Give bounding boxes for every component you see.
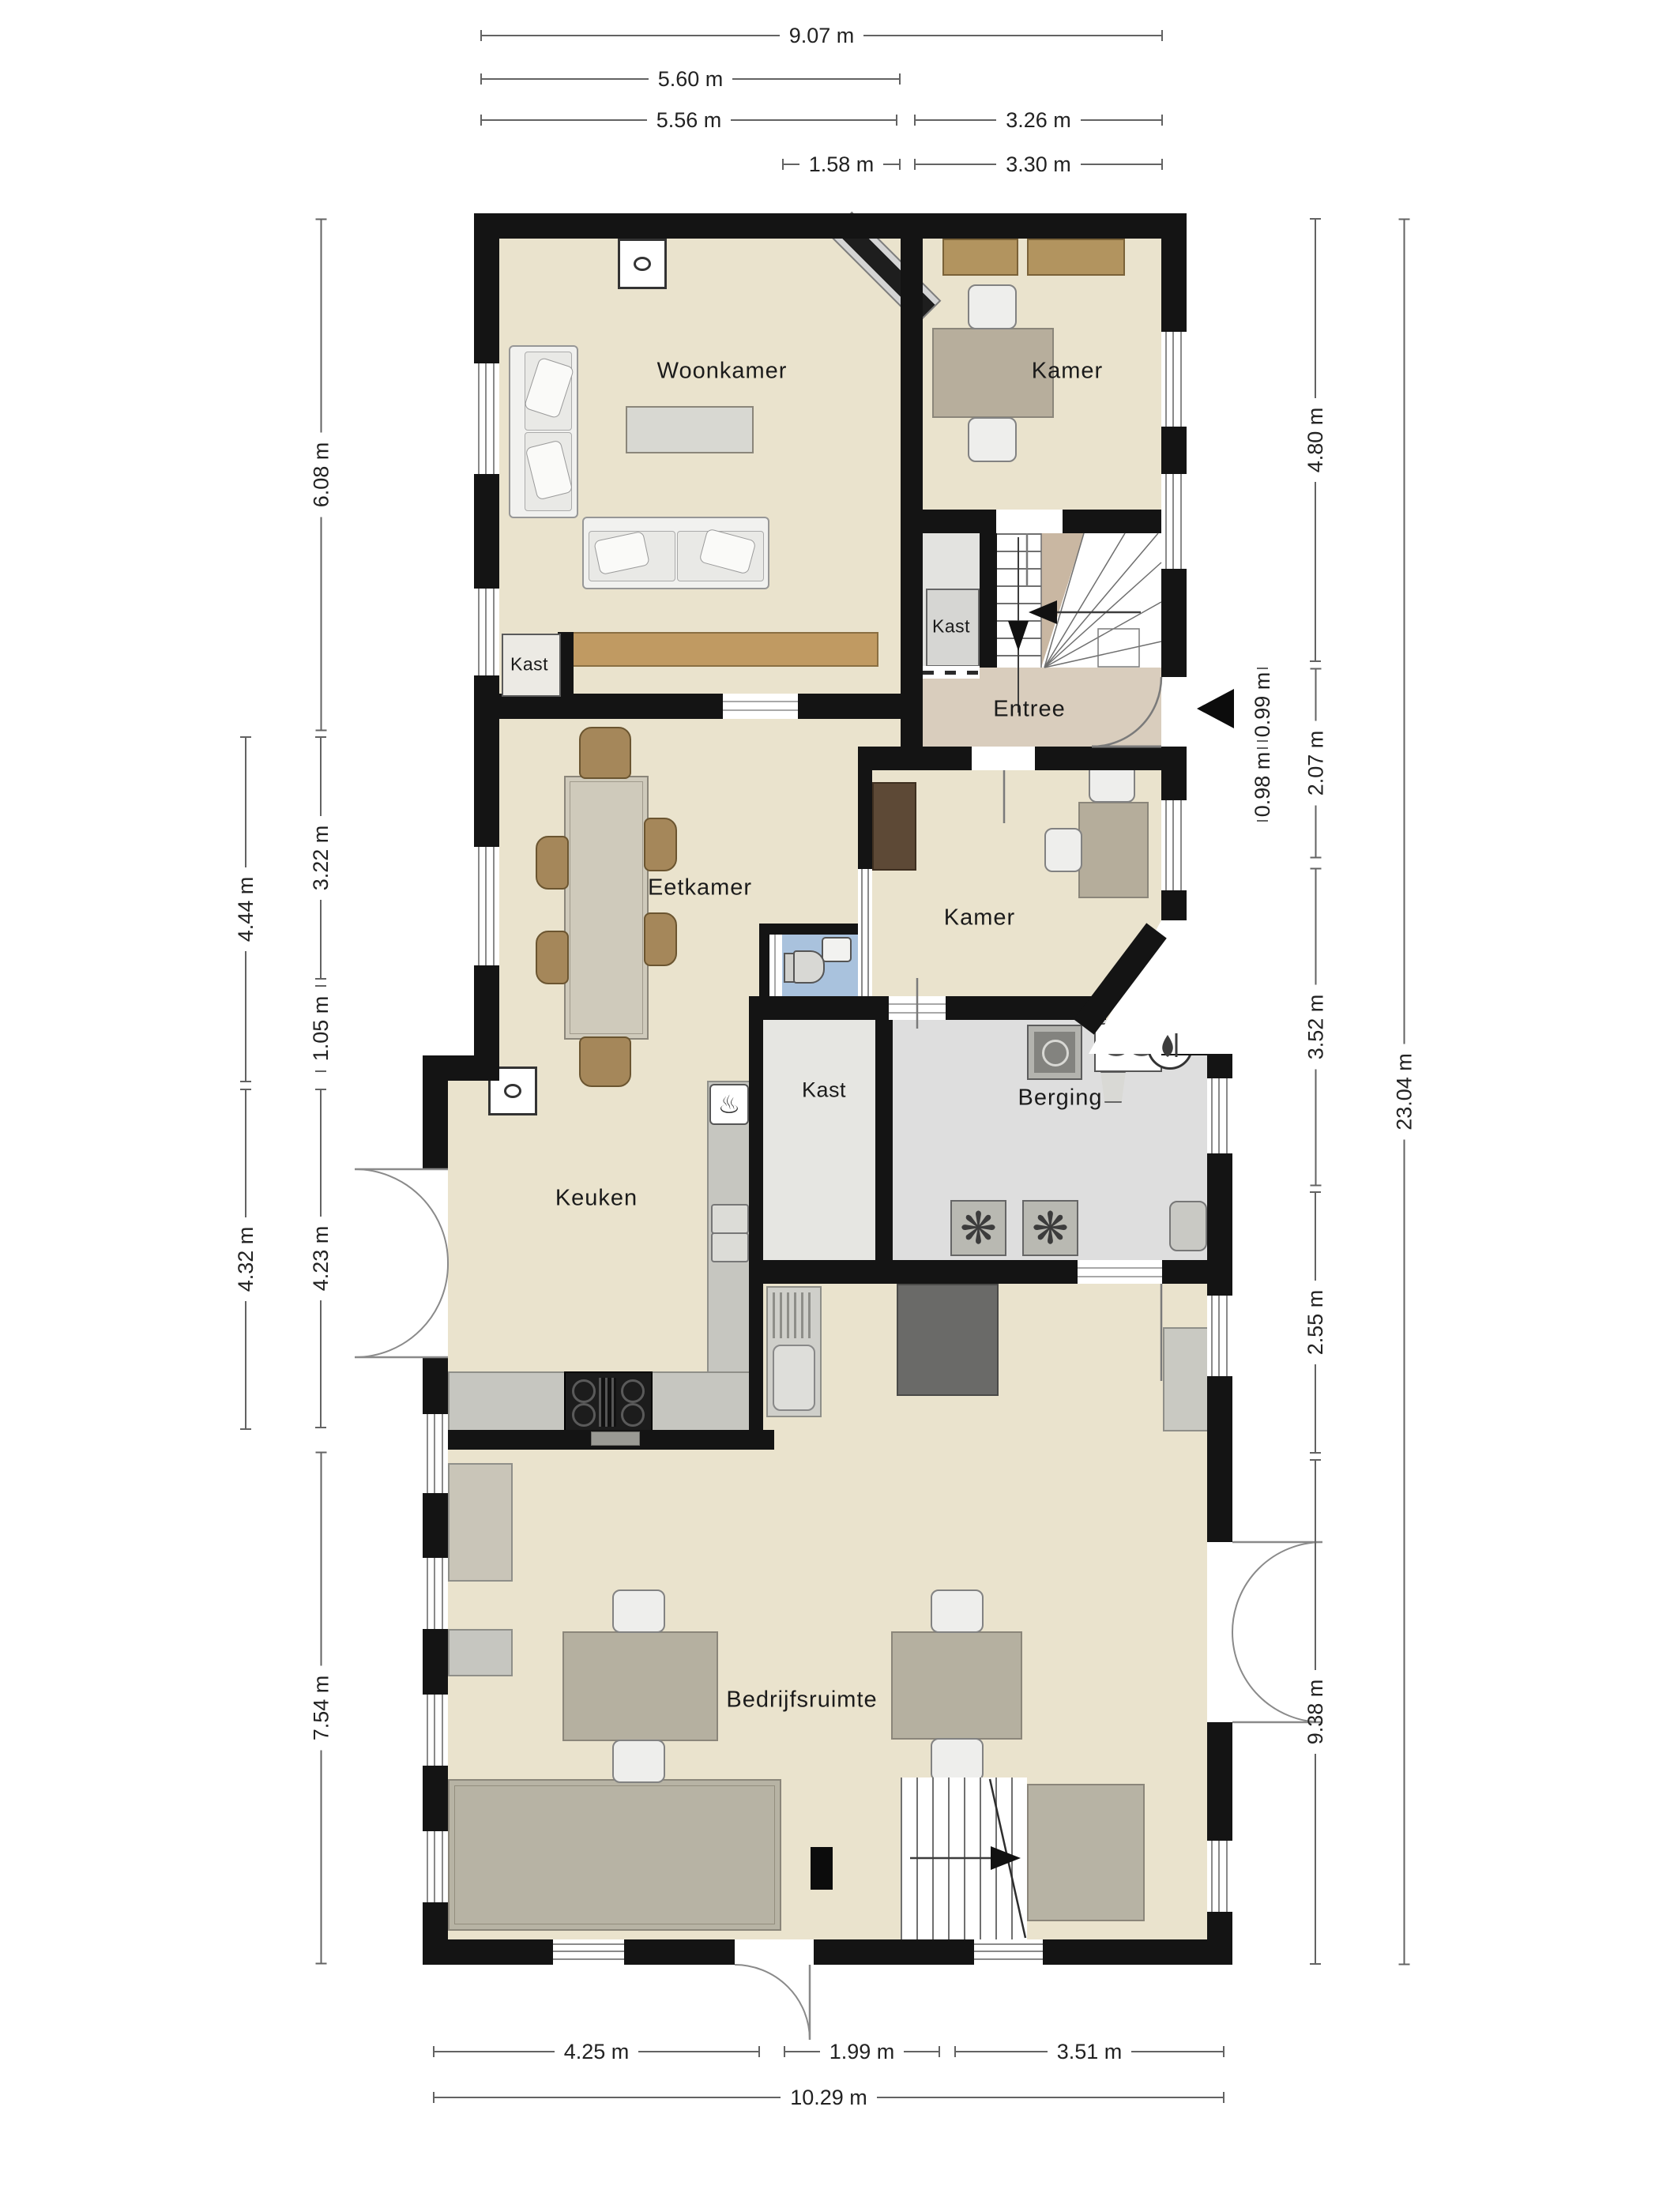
dimension: 5.60 m — [480, 67, 901, 91]
dimension: 4.80 m — [1303, 218, 1327, 662]
dimension: 4.23 m — [309, 1089, 333, 1428]
dimension: 3.51 m — [954, 2040, 1224, 2063]
dimension: 2.07 m — [1304, 668, 1328, 859]
dimension: 3.30 m — [914, 152, 1163, 176]
dimension: 4.25 m — [433, 2040, 760, 2063]
dimension: 0.99 m — [1251, 668, 1274, 742]
flame-icon — [1162, 1035, 1173, 1057]
dimension: 10.29 m — [433, 2086, 1224, 2109]
dimension: 1.99 m — [784, 2040, 940, 2063]
dimension: 2.55 m — [1303, 1191, 1327, 1454]
room-label: Bedrijfsruimte — [726, 1687, 877, 1714]
room-label: Entree — [993, 697, 1065, 723]
room-label: Kast — [510, 654, 548, 675]
dimension: 5.56 m — [480, 108, 897, 132]
room-label: Eetkamer — [648, 875, 752, 901]
room-label: Kast — [802, 1078, 846, 1103]
dimension: 7.54 m — [310, 1452, 333, 1965]
dimension: 1.58 m — [782, 152, 901, 176]
room-label: Berging — [1018, 1085, 1103, 1112]
room-label: Kamer — [944, 905, 1015, 931]
dimension: 3.52 m — [1304, 868, 1328, 1187]
dimension: 9.38 m — [1303, 1459, 1327, 1965]
dimension: 9.07 m — [480, 24, 1163, 47]
dimension: 4.44 m — [234, 736, 258, 1082]
room-label: Keuken — [555, 1186, 638, 1212]
room-label: Kamer — [1032, 359, 1103, 385]
dimension: 1.05 m — [309, 985, 333, 1072]
dimension: 4.32 m — [234, 1089, 258, 1430]
dimension: 6.08 m — [310, 219, 333, 732]
dimension: 3.22 m — [309, 736, 333, 980]
dimension: 3.26 m — [914, 108, 1163, 132]
dimension: 0.98 m — [1251, 747, 1274, 822]
dimension: 23.04 m — [1393, 219, 1416, 1966]
room-label: Woonkamer — [657, 359, 788, 385]
floor-plan: Woonkamer Kast Kamer Kast Entree Eetkame… — [0, 0, 1659, 2212]
room-label: Kast — [932, 616, 970, 638]
